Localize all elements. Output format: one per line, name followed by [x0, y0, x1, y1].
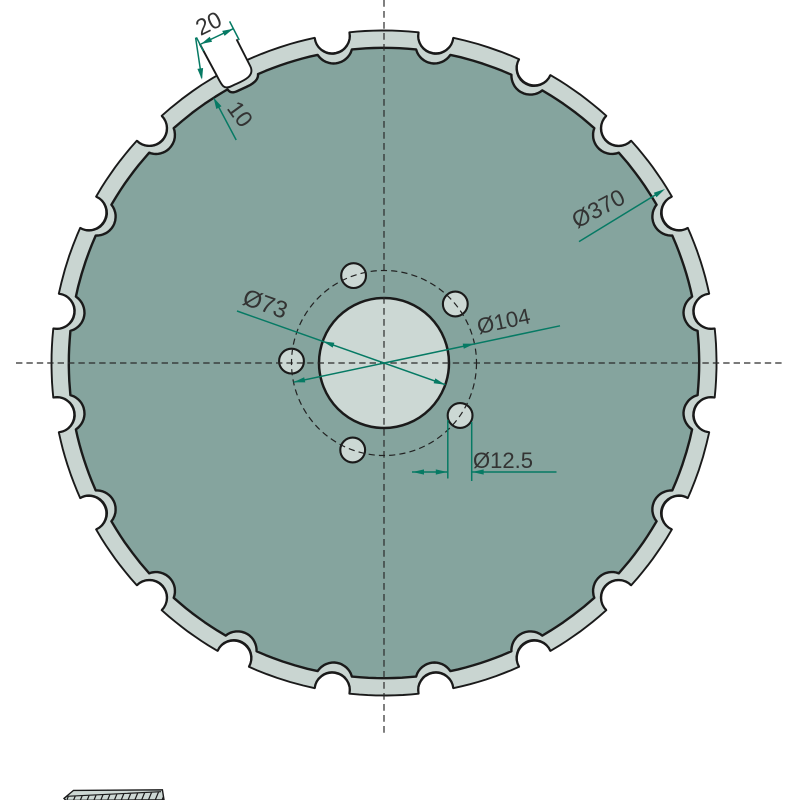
svg-text:Ø12.5: Ø12.5	[473, 448, 533, 473]
